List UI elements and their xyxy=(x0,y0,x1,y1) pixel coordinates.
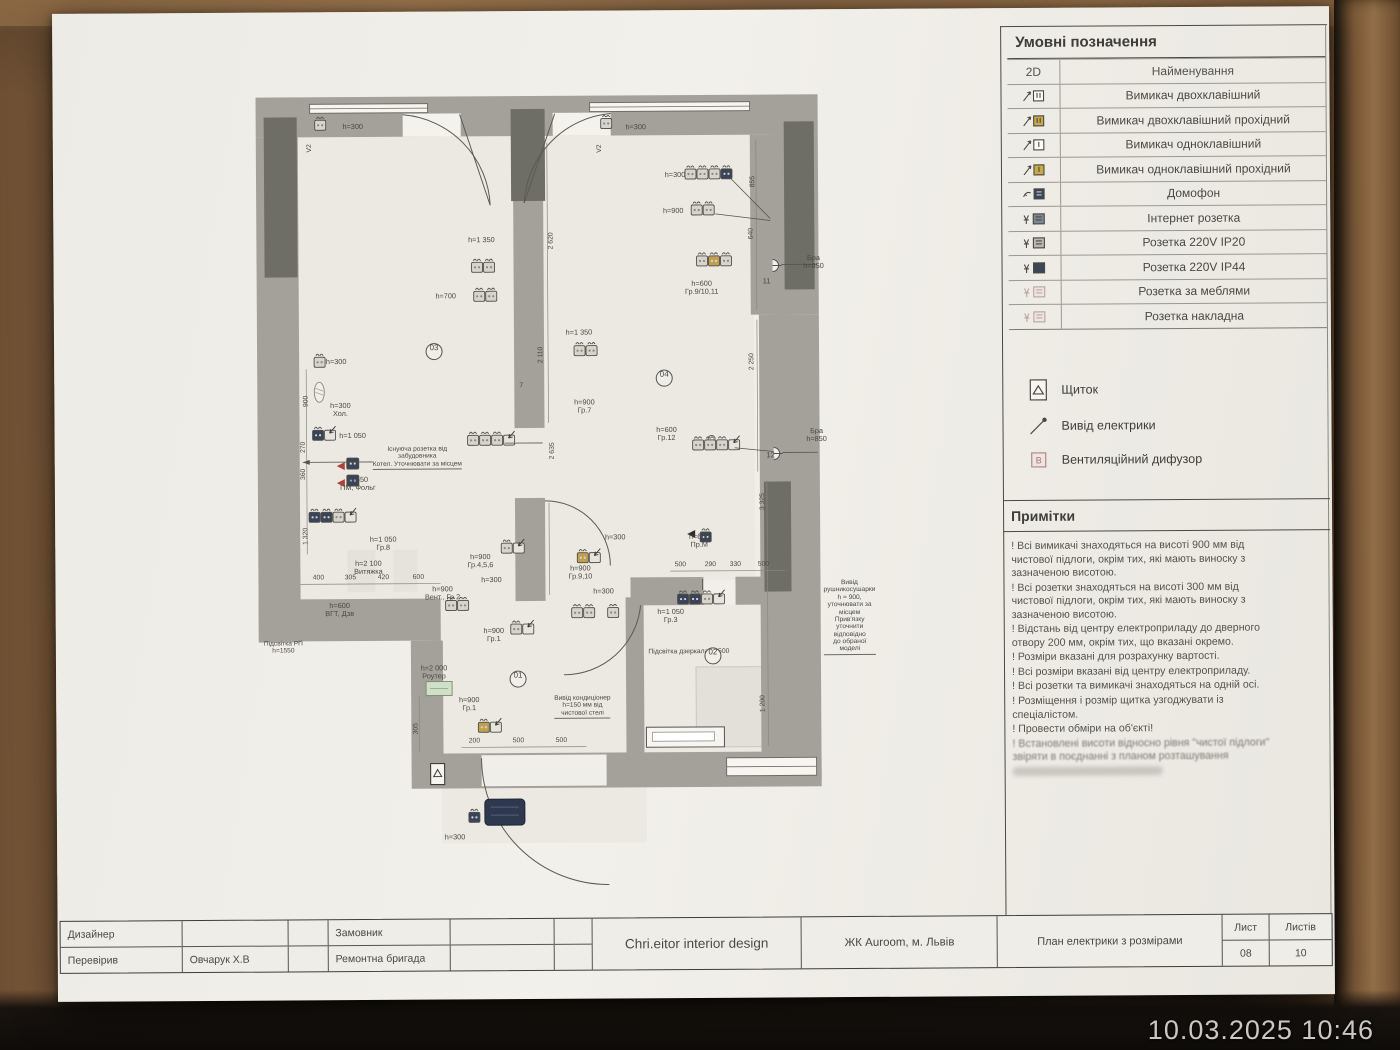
floor-plan: h=300h=300V2V2h=300h=900h=600 Гр.9/10,11… xyxy=(252,81,837,910)
intercom-icon xyxy=(1008,182,1061,206)
shield-icon xyxy=(1023,377,1053,401)
legend-row: Вимикач одноклавішний xyxy=(1008,131,1326,157)
vent-diffuser-icon: B xyxy=(1024,449,1054,469)
switch-double-icon xyxy=(1007,84,1060,108)
socket-ip44-icon xyxy=(1008,256,1061,280)
tb-client-col: Замовник Ремонтна бригада xyxy=(328,919,450,971)
note-item: ! Розміщення і розмір щитка узгоджувати … xyxy=(1012,693,1271,722)
legend-extra-label: Вентиляційний дифузор xyxy=(1062,451,1202,466)
project-name: ЖК Auroom, м. Львів xyxy=(802,916,997,968)
legend-row-label: Вимикач двохклавішний xyxy=(1060,87,1325,103)
legend-row: Вимикач одноклавішний прохідний xyxy=(1008,155,1326,181)
sheets-label: Листів xyxy=(1270,914,1332,939)
notes-body: ! Всі вимикачі знаходяться на висоті 900… xyxy=(1003,530,1331,776)
internet-socket-icon xyxy=(1008,207,1061,231)
title-block: Дизайнер Перевірив Овчарук Х.В Замовник … xyxy=(60,913,1333,974)
note-item: ! Всі розміри вказані від центру електро… xyxy=(1012,664,1271,679)
legend-extra-row: Щиток xyxy=(1023,376,1327,402)
legend-header-row: 2D Найменування xyxy=(1007,57,1325,83)
legend-row: Розетка 220V IP20 xyxy=(1008,229,1326,255)
tb-spacer-2 xyxy=(450,919,554,971)
legend-row: Вимикач двохклавішний xyxy=(1007,82,1325,108)
sheets-total: 10 xyxy=(1270,939,1332,965)
photo-background: h=300h=300V2V2h=300h=900h=600 Гр.9/10,11… xyxy=(0,0,1400,1050)
legend-table: 2D Найменування Вимикач двохклавішнийВим… xyxy=(1007,57,1327,329)
client-value: Ремонтна бригада xyxy=(328,944,449,971)
note-item: ! Провести обміри на об'єкті! xyxy=(1012,722,1271,737)
switch-double-pass-icon xyxy=(1008,109,1061,133)
notes-panel: Примітки ! Всі вимикачі знаходяться на в… xyxy=(1003,498,1332,776)
legend-col-name: Найменування xyxy=(1060,63,1325,79)
legend-row-label: Розетка 220V IP44 xyxy=(1062,259,1327,275)
socket-furniture-icon xyxy=(1009,280,1062,304)
legend-row: Розетка 220V IP44 xyxy=(1008,253,1326,279)
legend-col-2d: 2D xyxy=(1007,60,1060,84)
tb-spacer-1 xyxy=(288,920,328,971)
studio-name: Chri.eitor interior design xyxy=(592,917,801,969)
note-item: ! Розміри вказані для розрахунку вартост… xyxy=(1012,650,1271,665)
legend-extra-label: Щиток xyxy=(1061,382,1098,396)
switch-single-pass-icon xyxy=(1008,158,1061,182)
note-item: ! Встановлені висоти відносно рівня "чис… xyxy=(1012,736,1271,765)
tb-project-col: ЖК Auroom, м. Львів xyxy=(802,916,998,968)
client-label: Замовник xyxy=(328,919,449,945)
socket-ip20-icon xyxy=(1008,231,1061,255)
legend-row-label: Вимикач одноклавішний прохідний xyxy=(1061,161,1326,177)
legend-row: Інтернет розетка xyxy=(1008,204,1326,230)
designer-label: Дизайнер xyxy=(61,921,182,947)
smudged-text xyxy=(1013,766,1163,776)
floor-plan-svg xyxy=(252,81,837,910)
legend-extra-row: BВентиляційний дифузор xyxy=(1024,448,1328,470)
designer-value xyxy=(182,920,287,946)
checked-label: Перевірив xyxy=(61,946,182,973)
legend-panel: Умовні позначення 2D Найменування Вимика… xyxy=(1007,26,1328,482)
note-item: ! Всі розетки та вимикачі знаходяться на… xyxy=(1012,679,1271,694)
tb-roles-col: Дизайнер Перевірив xyxy=(61,921,183,973)
note-item: ! Всі вимикачі знаходяться на висоті 900… xyxy=(1011,538,1270,580)
legend-row-label: Інтернет розетка xyxy=(1061,210,1326,226)
legend-row: Розетка накладна xyxy=(1009,302,1327,328)
legend-row-label: Вимикач одноклавішний xyxy=(1061,136,1326,152)
sheet-label: Лист xyxy=(1223,914,1269,939)
drawing-sheet: h=300h=300V2V2h=300h=900h=600 Гр.9/10,11… xyxy=(52,6,1335,1002)
legend-row-label: Розетка накладна xyxy=(1062,308,1327,324)
legend-row-label: Розетка 220V IP20 xyxy=(1061,234,1326,250)
legend-row-label: Вимикач двохклавішний прохідний xyxy=(1061,112,1326,128)
power-outlet-icon xyxy=(1023,414,1053,436)
switch-single-icon xyxy=(1008,133,1061,157)
wood-floor-right xyxy=(1334,0,1400,1050)
tb-names-col: Овчарук Х.В xyxy=(182,920,288,972)
tb-spacer-3 xyxy=(554,919,592,970)
sheet-number: 08 xyxy=(1223,939,1269,965)
notes-title: Примітки xyxy=(1003,498,1330,532)
svg-text:B: B xyxy=(1036,455,1042,465)
legend-row: Розетка за меблями xyxy=(1009,278,1327,304)
photo-timestamp: 10.03.2025 10:46 xyxy=(1148,1015,1374,1046)
panel-divider-line xyxy=(1000,26,1006,915)
legend-row: Домофон xyxy=(1008,180,1326,206)
sheet-title: План електрики з розмірами xyxy=(998,915,1222,967)
note-item: ! Відстань від центру електроприладу до … xyxy=(1012,622,1271,651)
note-item: ! Всі розетки знаходяться на висоті 300 … xyxy=(1011,580,1270,622)
tb-studio-col: Chri.eitor interior design xyxy=(592,917,802,969)
legend-row-label: Домофон xyxy=(1061,185,1326,201)
tb-sheets-col: Листів 10 xyxy=(1270,914,1332,965)
legend-extra-label: Вивід електрики xyxy=(1061,418,1155,433)
legend-extras: ЩитокВивід електрикиBВентиляційний дифуз… xyxy=(1009,376,1328,470)
sheet-right-frame xyxy=(1325,24,1332,966)
legend-title: Умовні позначення xyxy=(1007,26,1325,59)
legend-row-label: Розетка за меблями xyxy=(1062,283,1327,299)
legend-row: Вимикач двохклавішний прохідний xyxy=(1008,106,1326,132)
socket-surface-icon xyxy=(1009,305,1062,329)
legend-extra-row: Вивід електрики xyxy=(1023,413,1327,437)
checked-value: Овчарук Х.В xyxy=(183,945,288,972)
tb-sheet-title-col: План електрики з розмірами xyxy=(998,915,1223,967)
tb-sheet-col: Лист 08 xyxy=(1223,914,1270,965)
